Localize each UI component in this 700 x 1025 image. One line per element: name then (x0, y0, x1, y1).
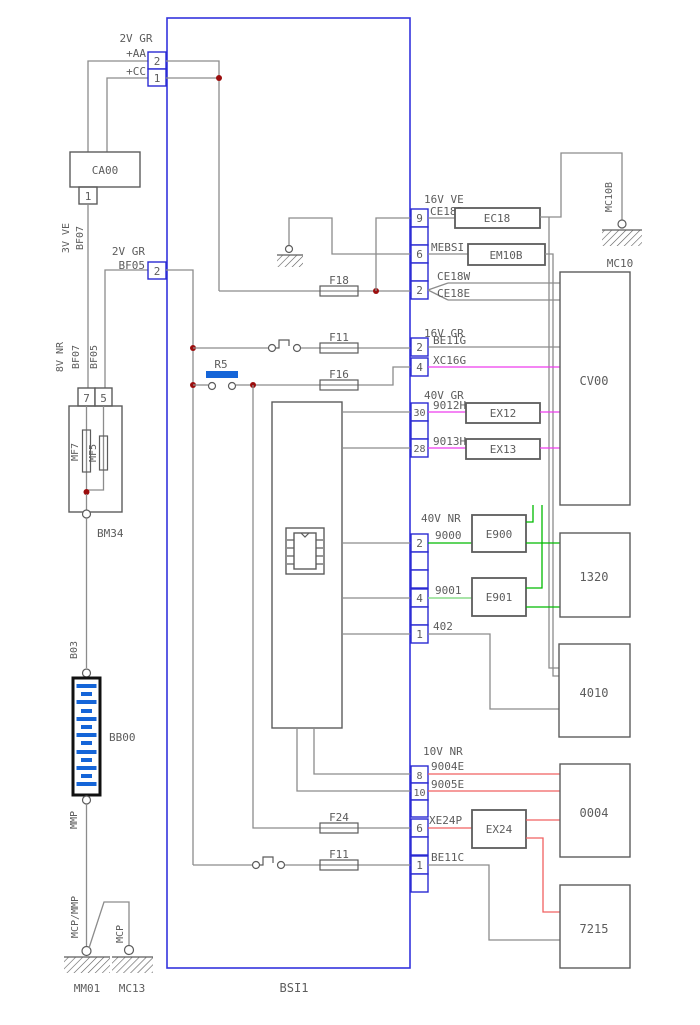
switch-contact (253, 862, 260, 869)
pin-number: 2 (154, 265, 161, 278)
wire-label: BE11C (431, 851, 464, 864)
wire-bf05 (105, 270, 148, 388)
fuse-label-vertical: MF5 (88, 444, 99, 462)
bsi1-label: BSI1 (280, 981, 309, 995)
wire-e900-cv00 (526, 505, 533, 522)
splice-label: EM10B (489, 249, 522, 262)
ground-hatch (64, 957, 110, 973)
switch-contact (229, 383, 236, 390)
component-label: 7215 (580, 922, 609, 936)
pin-stack-40vnr: 2 4 1 (411, 534, 428, 643)
ic-chip-icon (286, 528, 324, 574)
pin-number: 6 (416, 248, 423, 261)
wire-f16-line (236, 367, 411, 385)
harness-label-vertical: 8V NR (55, 341, 66, 372)
connector-circle (618, 220, 626, 228)
fuse-label: F16 (329, 368, 349, 381)
pin-number: 4 (416, 361, 423, 374)
wire-label-vertical: MCP/MMP (70, 896, 81, 938)
bsi1-unit-box (167, 18, 410, 968)
splice-label: EX13 (490, 443, 517, 456)
pin-stack-40vgr: 30 28 (411, 403, 428, 457)
component-label: CV00 (580, 374, 609, 388)
fuse-label: F24 (329, 811, 349, 824)
harness-label: 2V GR (112, 245, 145, 258)
pin-number: 1 (416, 628, 423, 641)
wire-be11c (428, 865, 560, 940)
wire-label: 9004E (431, 760, 464, 773)
pin-number: 2 (416, 284, 423, 297)
pin-number: 6 (416, 822, 423, 835)
switch-pulse-icon (260, 857, 273, 865)
pin-number: 10 (413, 788, 425, 799)
wire-label-vertical: B03 (69, 641, 80, 659)
pin-number: 1 (154, 72, 161, 85)
pin-number: 7 (83, 392, 90, 405)
component-label: 4010 (580, 686, 609, 700)
wire-ex24-7215 (526, 838, 560, 912)
pin-number: 28 (413, 444, 425, 455)
wire-internal-bus (166, 270, 193, 865)
junction-dot (216, 75, 222, 81)
wire-label: 9005E (431, 778, 464, 791)
wire-label: CE18E (437, 287, 470, 300)
ground-hatch (112, 957, 153, 973)
pin-number: 9 (416, 212, 423, 225)
wire-label: 9013H (433, 435, 466, 448)
wire-label: 9001 (435, 584, 462, 597)
connector-circle (83, 796, 91, 804)
bsi-submodule-box (272, 402, 342, 728)
ca00-label: CA00 (92, 164, 119, 177)
component-label: 1320 (580, 570, 609, 584)
fuse-label: F18 (329, 274, 349, 287)
battery-label: BB00 (109, 731, 136, 744)
wire-402 (428, 634, 559, 709)
pin-stack-be11: 2 4 (411, 338, 428, 376)
wire-label-vertical: 3V VE (61, 223, 72, 253)
schematic-canvas: BSI1 2 1 2V GR +AA +CC CA00 1 3V VE BF07… (0, 0, 700, 1020)
splice-label: E901 (486, 591, 513, 604)
pin-stack-10vnr: 8 10 6 1 (411, 766, 428, 892)
wire-label: 402 (433, 620, 453, 633)
wiring-diagram: BSI1 2 1 2V GR +AA +CC CA00 1 3V VE BF07… (0, 0, 700, 1020)
wire-label: BF05 (119, 259, 146, 272)
wire-label: CE18W (437, 270, 470, 283)
wire-label: +CC (126, 65, 146, 78)
pin-number: 5 (100, 392, 107, 405)
pin-stack-ce18: 9 6 2 (411, 209, 428, 299)
wire-label-vertical: BF05 (89, 345, 100, 369)
switch-contact (209, 383, 216, 390)
wire-internal-cc-f18 (166, 78, 219, 291)
pin-number: 2 (416, 537, 423, 550)
ground-hatch (602, 230, 642, 246)
wire-label: XC16G (433, 354, 466, 367)
harness-label: 40V NR (421, 512, 461, 525)
pin-number: 8 (416, 771, 422, 782)
splice-label: EX12 (490, 407, 517, 420)
switch-contact (294, 345, 301, 352)
wire-label-vertical: MCP (115, 925, 126, 943)
ground-label: MC10 (607, 257, 634, 270)
switch-contact (269, 345, 276, 352)
wire-plus-cc (107, 78, 148, 152)
bm34-label: BM34 (97, 527, 124, 540)
wire-e901-cv00 (526, 505, 542, 588)
wire-label-vertical: BF07 (71, 345, 82, 369)
splice-label: E900 (486, 528, 513, 541)
wire-f24-line (253, 385, 411, 828)
r5-label: R5 (214, 358, 227, 371)
pin-number: 2 (416, 341, 423, 354)
wire-em10b-down (545, 254, 559, 676)
ground-label: MC13 (119, 982, 146, 995)
wire-mebsi-internal (289, 218, 411, 254)
wire-internal-aa (166, 61, 219, 78)
connector-circle (83, 669, 91, 677)
wire-label: 9012H (433, 399, 466, 412)
ground-hatch (277, 255, 303, 267)
pin-number: 2 (154, 55, 161, 68)
harness-label: 2V GR (119, 32, 152, 45)
wire-ec18-down (549, 217, 559, 668)
fuse-label: F11 (329, 848, 349, 861)
connector-circle (286, 246, 293, 253)
wire-to-pin8 (314, 728, 411, 774)
fuse-label: F11 (329, 331, 349, 344)
splice-label: EX24 (486, 823, 513, 836)
wire-label-vertical: MMP (69, 811, 80, 829)
component-label: 0004 (580, 806, 609, 820)
connector-circle (83, 510, 91, 518)
harness-label: 10V NR (423, 745, 463, 758)
ground-label: MM01 (74, 982, 101, 995)
connector-circle (125, 946, 134, 955)
wire-label: BE11G (433, 334, 466, 347)
wire-label: +AA (126, 47, 146, 60)
wire-label: XE24P (429, 814, 462, 827)
switch-pulse-icon (276, 340, 289, 348)
wire-label-vertical: MC10B (604, 182, 615, 212)
wire-label: MEBSI (431, 241, 464, 254)
pin-number: 1 (85, 190, 92, 203)
r5-shunt-icon (206, 371, 238, 378)
wire-label-vertical: BF07 (75, 226, 86, 250)
pin-number: 1 (416, 859, 423, 872)
pin-number: 30 (413, 408, 425, 419)
component-cv00 (560, 272, 630, 505)
splice-label: EC18 (484, 212, 511, 225)
switch-contact (278, 862, 285, 869)
wire-label: 9000 (435, 529, 462, 542)
fuse-label-vertical: MF7 (70, 443, 81, 461)
pin-number: 4 (416, 592, 423, 605)
